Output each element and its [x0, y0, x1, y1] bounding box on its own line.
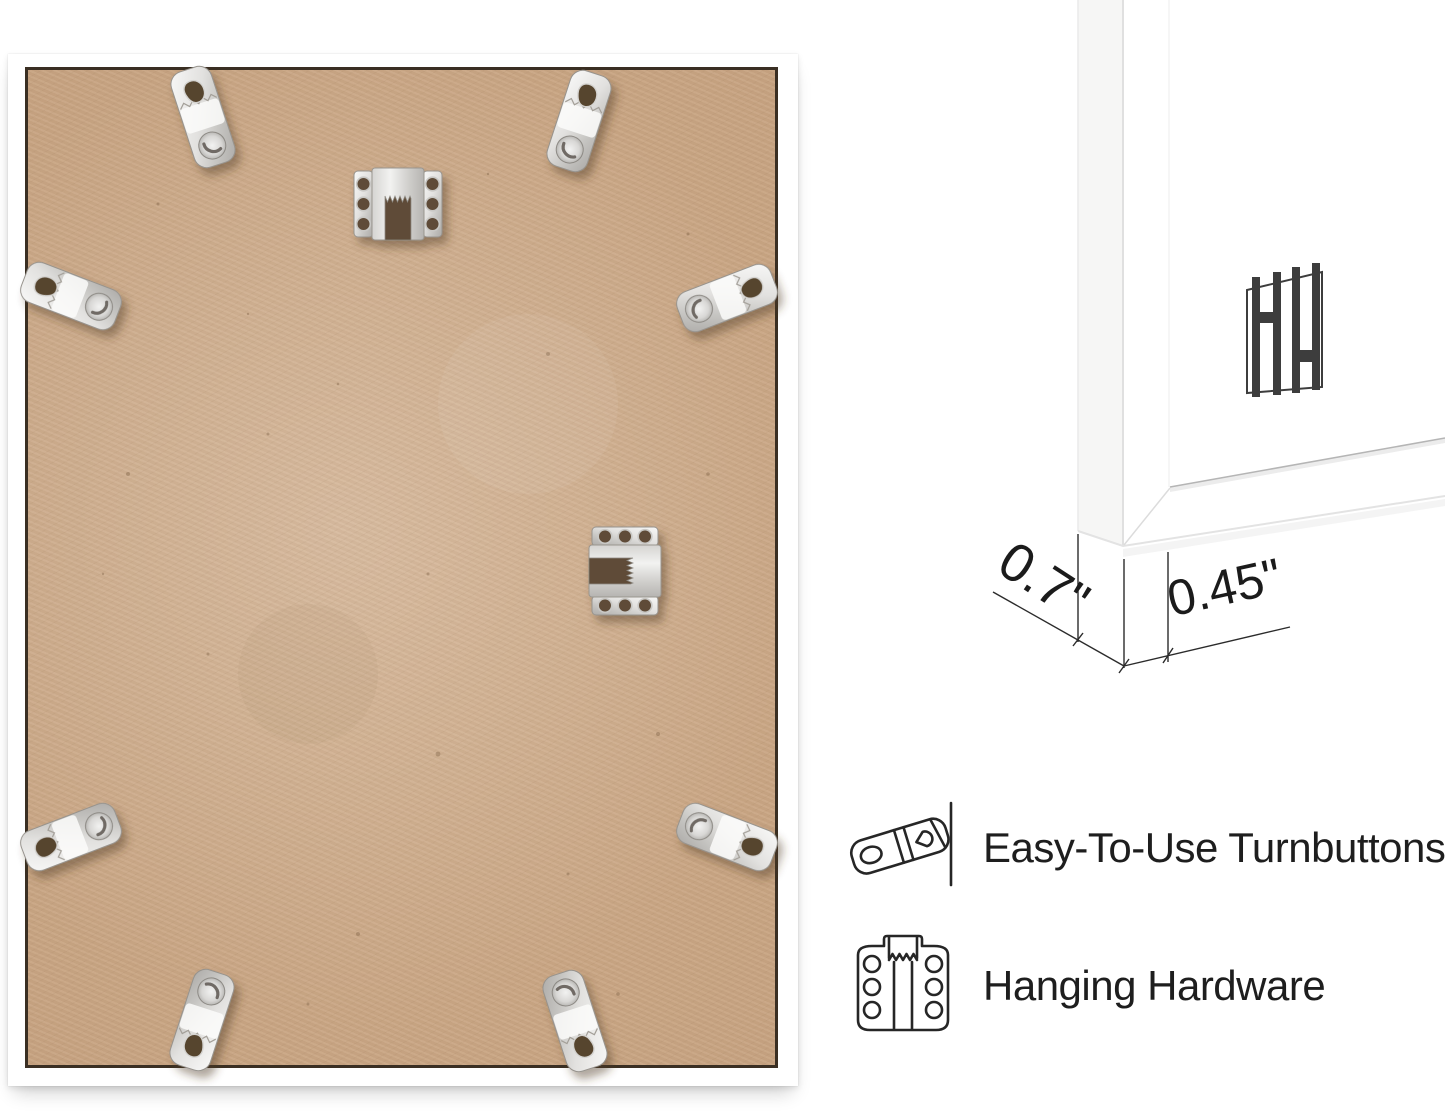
depth-measurement: 0.7" — [988, 530, 1100, 632]
sawtooth-hanger-right — [589, 527, 661, 615]
frame-hardware-overlay — [8, 54, 798, 1086]
mdf-smudges — [238, 314, 618, 744]
turnbutton-left-lower — [17, 799, 125, 874]
turnbutton-right-upper — [673, 260, 781, 335]
feature-label-turnbuttons: Easy-To-Use Turnbuttons — [983, 824, 1445, 872]
turnbutton-right-lower — [673, 799, 781, 874]
turnbutton-top-left — [168, 63, 239, 171]
frame-corner-piece — [1078, 0, 1445, 557]
frame-back-photo — [8, 54, 798, 1086]
hanging-hardware-icon — [848, 930, 958, 1040]
face-measurement: 0.45" — [1162, 548, 1286, 628]
sawtooth-hanger-top — [354, 168, 442, 240]
hardware — [17, 63, 781, 1075]
turnbutton-left-upper — [17, 258, 125, 333]
turnbutton-bottom-right — [540, 967, 611, 1075]
turnbutton-top-right — [544, 67, 615, 175]
frame-corner-view: 0.7" 0.45" — [960, 0, 1445, 700]
feature-label-hanging-hardware: Hanging Hardware — [983, 962, 1325, 1010]
product-image: 0.7" 0.45" Easy-To-Use Turnbuttons Hangi… — [0, 0, 1445, 1114]
turnbutton-bottom-left — [167, 966, 238, 1074]
turnbutton-icon — [845, 793, 960, 893]
